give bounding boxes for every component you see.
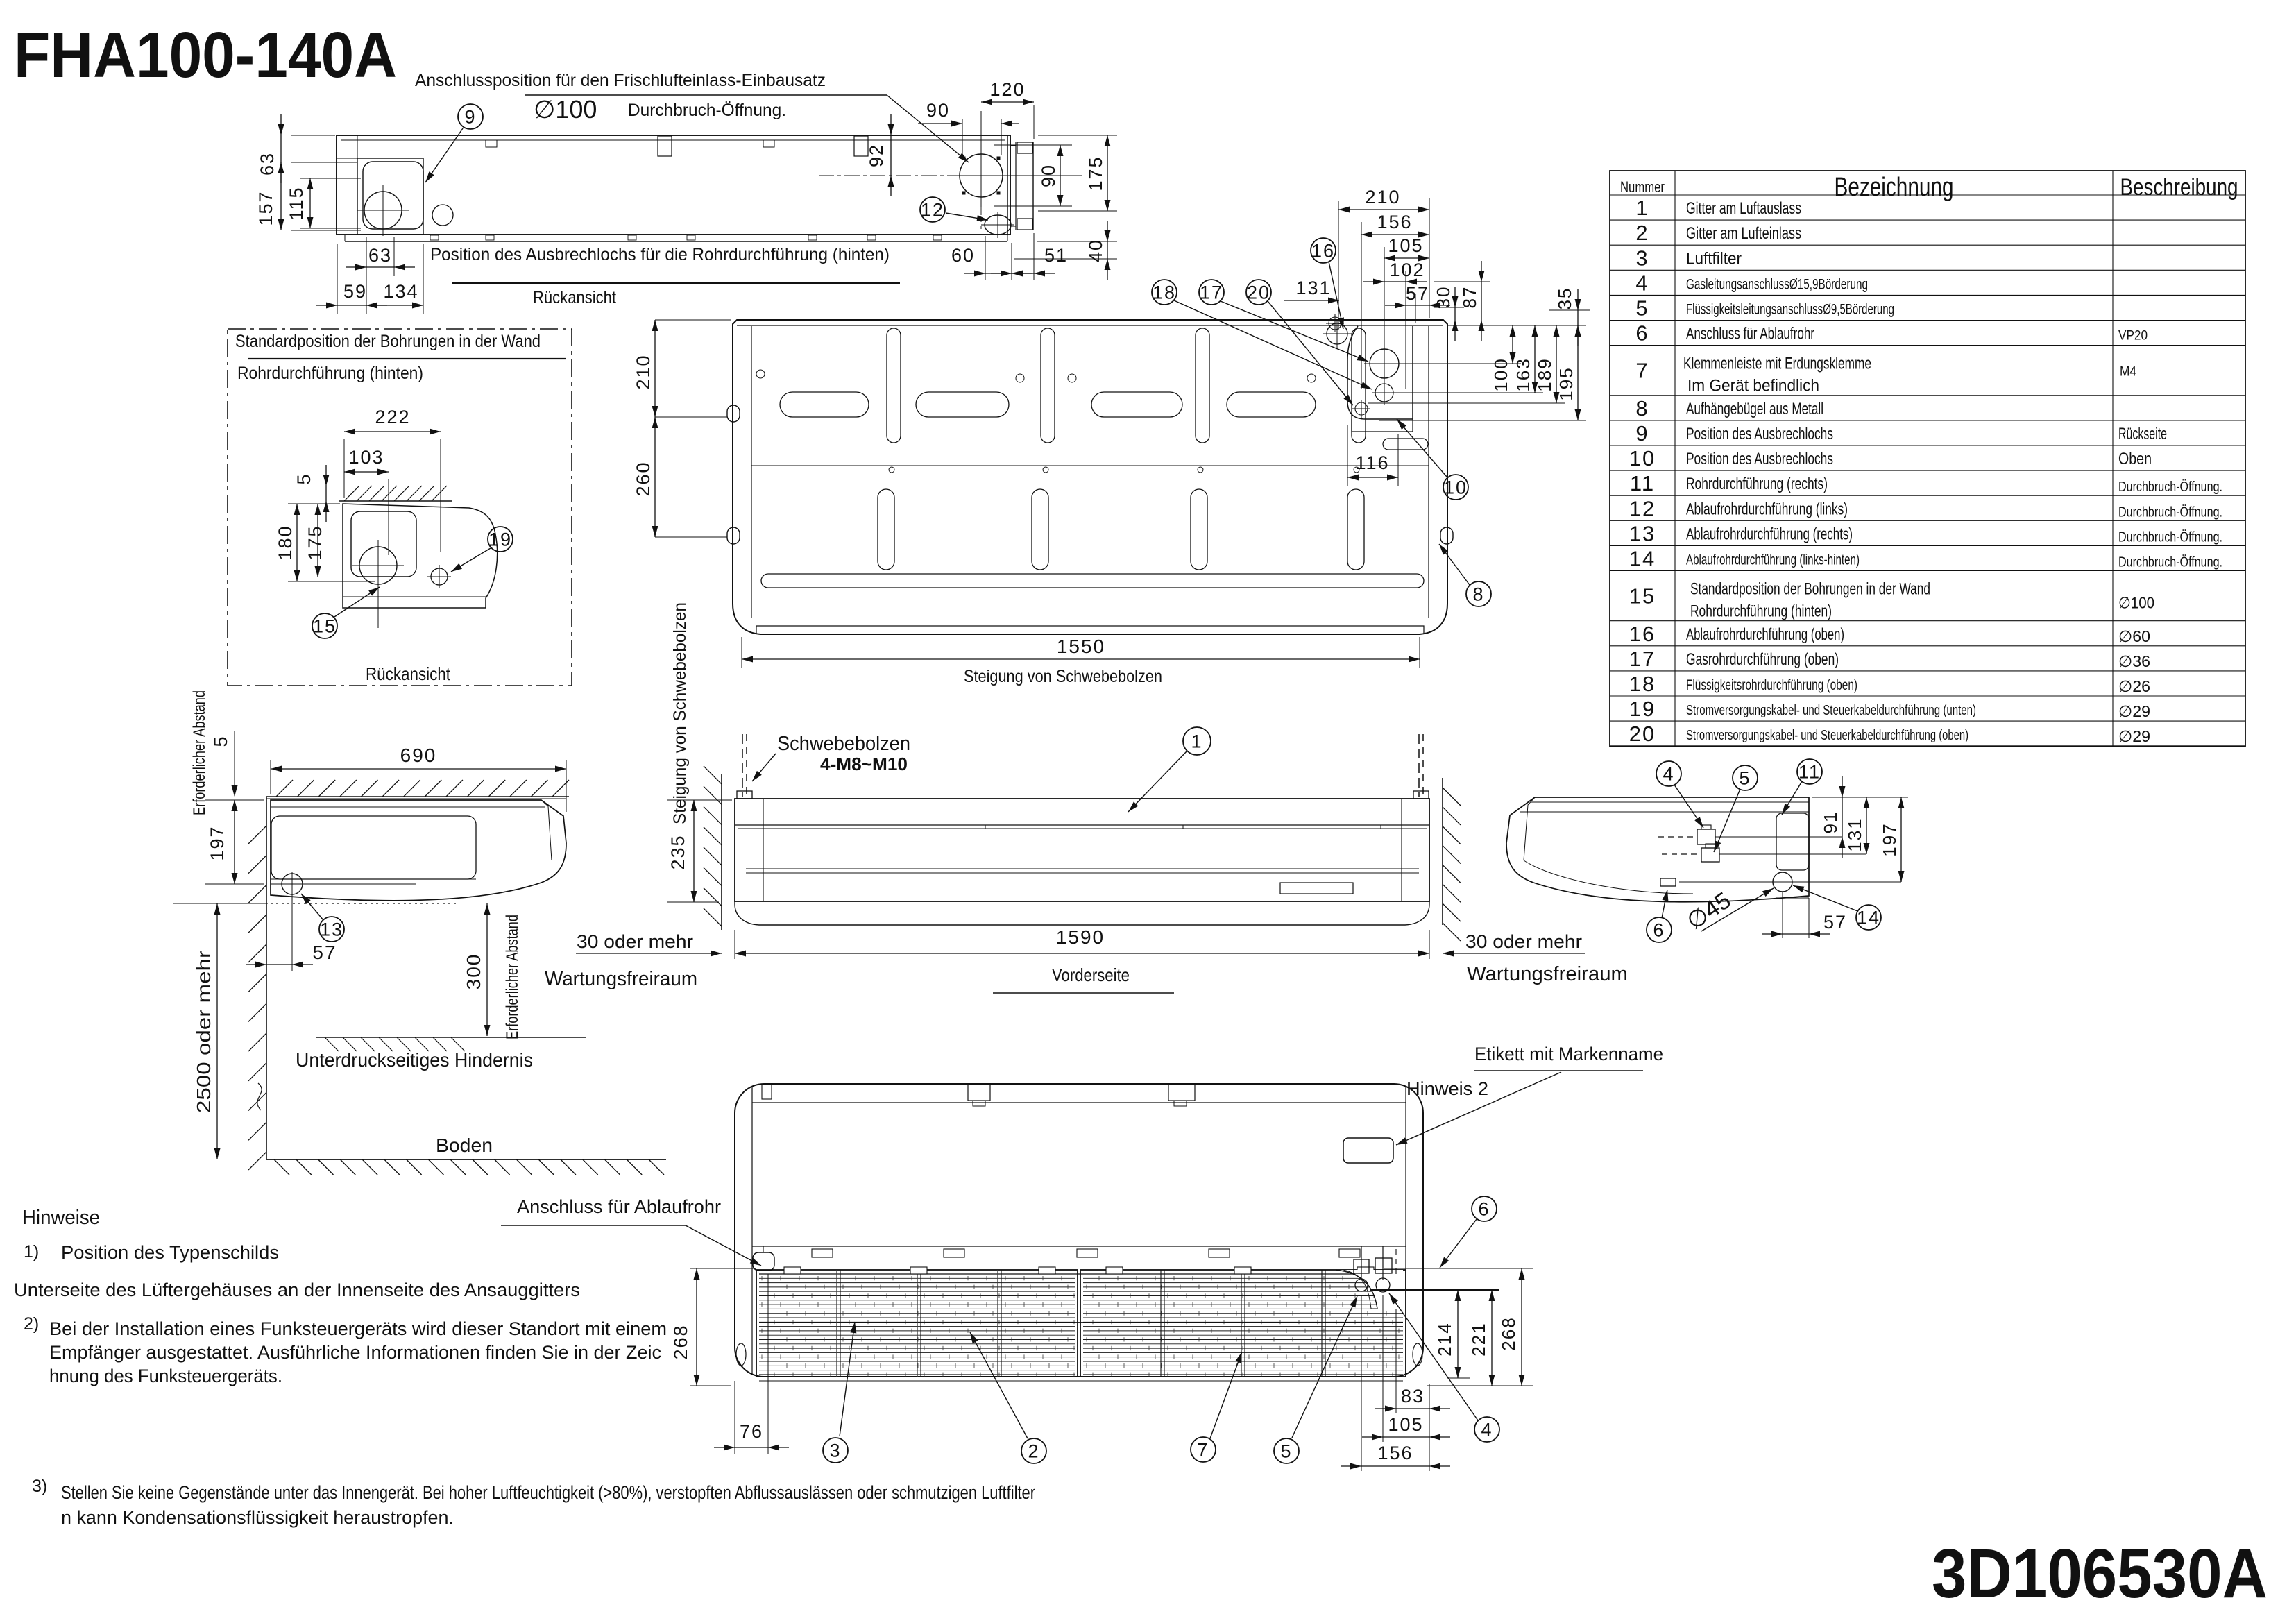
svg-text:268: 268 xyxy=(1498,1316,1519,1350)
svg-text:FlüssigkeitsleitungsanschlussØ: FlüssigkeitsleitungsanschlussØ9,5Börderu… xyxy=(1686,301,1894,317)
svg-text:3D106530A: 3D106530A xyxy=(1932,1535,2268,1613)
svg-text:16: 16 xyxy=(1629,622,1656,646)
svg-text:131: 131 xyxy=(1295,278,1331,298)
svg-text:Nummer: Nummer xyxy=(1620,178,1665,196)
svg-text:Durchbruch-Öffnung.: Durchbruch-Öffnung. xyxy=(628,101,786,120)
svg-text:2: 2 xyxy=(1028,1441,1039,1462)
svg-text:40: 40 xyxy=(1085,239,1106,262)
svg-text:∅29: ∅29 xyxy=(2118,702,2150,720)
svg-text:Rückansicht: Rückansicht xyxy=(366,663,451,684)
svg-text:16: 16 xyxy=(1311,241,1335,262)
svg-text:Rohrdurchführung (hinten): Rohrdurchführung (hinten) xyxy=(1690,602,1832,621)
svg-text:6: 6 xyxy=(1478,1199,1490,1220)
svg-text:10: 10 xyxy=(1444,477,1468,498)
svg-text:Stromversorgungskabel- und Ste: Stromversorgungskabel- und Steuerkabeldu… xyxy=(1686,703,1976,718)
svg-text:195: 195 xyxy=(1556,366,1576,400)
svg-text:3): 3) xyxy=(32,1477,47,1496)
svg-text:51: 51 xyxy=(1044,245,1068,266)
svg-text:VP20: VP20 xyxy=(2118,329,2148,343)
svg-text:Durchbruch-Öffnung.: Durchbruch-Öffnung. xyxy=(2118,554,2222,570)
svg-text:7: 7 xyxy=(1635,359,1649,383)
svg-text:Klemmenleiste mit Erdungsklemm: Klemmenleiste mit Erdungsklemme xyxy=(1683,355,1871,373)
svg-text:4: 4 xyxy=(1663,764,1674,785)
svg-text:17: 17 xyxy=(1200,282,1223,303)
svg-text:180: 180 xyxy=(275,525,296,560)
svg-text:Ablaufrohrdurchführung (rechts: Ablaufrohrdurchführung (rechts) xyxy=(1686,525,1853,543)
svg-text:8: 8 xyxy=(1635,396,1649,420)
svg-text:Position des Ausbrechlochs: Position des Ausbrechlochs xyxy=(1686,425,1833,443)
svg-text:175: 175 xyxy=(305,525,325,560)
svg-text:3: 3 xyxy=(1635,246,1649,270)
svg-text:Empfänger ausgestattet. Ausfüh: Empfänger ausgestattet. Ausführliche Inf… xyxy=(49,1342,661,1363)
svg-text:15: 15 xyxy=(1629,584,1656,609)
svg-text:Aufhängebügel aus Metall: Aufhängebügel aus Metall xyxy=(1686,400,1823,418)
svg-text:6: 6 xyxy=(1635,321,1649,346)
svg-text:Hinweis 2: Hinweis 2 xyxy=(1406,1078,1488,1099)
svg-text:Stellen Sie keine Gegenstände: Stellen Sie keine Gegenstände unter das … xyxy=(61,1482,1035,1503)
svg-text:Rückseite: Rückseite xyxy=(2118,425,2167,443)
svg-text:92: 92 xyxy=(866,144,887,167)
svg-text:5: 5 xyxy=(1280,1441,1292,1462)
svg-text:1550: 1550 xyxy=(1057,636,1105,657)
svg-text:Unterseite des Lüftergehäuses: Unterseite des Lüftergehäuses an der Inn… xyxy=(14,1280,580,1300)
svg-text:20: 20 xyxy=(1629,722,1656,746)
svg-text:Position des Typenschilds: Position des Typenschilds xyxy=(61,1242,279,1263)
svg-text:Ablaufrohrdurchführung (links-: Ablaufrohrdurchführung (links-hinten) xyxy=(1686,552,1860,568)
svg-text:∅100: ∅100 xyxy=(2118,594,2154,612)
svg-text:Gitter am Luftauslass: Gitter am Luftauslass xyxy=(1686,199,1801,218)
svg-text:4: 4 xyxy=(1635,271,1649,295)
svg-text:116: 116 xyxy=(1355,452,1389,473)
svg-text:Flüssigkeitsrohrdurchführung (: Flüssigkeitsrohrdurchführung (oben) xyxy=(1686,677,1857,693)
svg-text:103: 103 xyxy=(348,447,384,468)
svg-text:14: 14 xyxy=(1857,908,1880,928)
svg-text:30 oder mehr: 30 oder mehr xyxy=(1465,931,1582,952)
svg-text:1590: 1590 xyxy=(1056,926,1105,948)
svg-text:Vorderseite: Vorderseite xyxy=(1052,965,1130,985)
svg-text:3: 3 xyxy=(829,1441,841,1461)
svg-text:60: 60 xyxy=(951,245,975,266)
svg-text:14: 14 xyxy=(1629,546,1656,570)
svg-text:Erforderlicher Abstand: Erforderlicher Abstand xyxy=(190,690,209,815)
svg-text:163: 163 xyxy=(1513,357,1533,391)
svg-text:156: 156 xyxy=(1377,1443,1413,1463)
svg-text:20: 20 xyxy=(1247,282,1270,303)
svg-text:87: 87 xyxy=(1459,286,1480,309)
svg-text:∅60: ∅60 xyxy=(2118,627,2150,645)
svg-text:5: 5 xyxy=(210,735,231,747)
svg-text:Beschreibung: Beschreibung xyxy=(2120,174,2238,201)
svg-text:690: 690 xyxy=(400,745,437,766)
svg-text:Anschluss für Ablaufrohr: Anschluss für Ablaufrohr xyxy=(1686,325,1814,343)
svg-text:235: 235 xyxy=(667,834,688,869)
svg-text:63: 63 xyxy=(257,152,278,176)
svg-text:13: 13 xyxy=(320,919,343,940)
svg-text:Unterdruckseitiges Hindernis: Unterdruckseitiges Hindernis xyxy=(296,1049,533,1071)
svg-text:120: 120 xyxy=(989,79,1025,100)
svg-text:M4: M4 xyxy=(2120,365,2136,380)
svg-text:76: 76 xyxy=(740,1421,763,1442)
svg-text:210: 210 xyxy=(633,354,654,389)
svg-text:Gitter am Lufteinlass: Gitter am Lufteinlass xyxy=(1686,224,1801,243)
svg-text:221: 221 xyxy=(1468,1322,1489,1356)
svg-text:1: 1 xyxy=(1191,731,1202,752)
svg-text:4-M8~M10: 4-M8~M10 xyxy=(820,754,908,774)
svg-text:157: 157 xyxy=(255,190,276,226)
svg-text:Bei der Installation eines Fun: Bei der Installation eines Funksteuerger… xyxy=(49,1318,667,1339)
svg-text:63: 63 xyxy=(368,245,392,266)
svg-text:57: 57 xyxy=(1823,912,1847,933)
svg-text:2): 2) xyxy=(24,1314,39,1334)
svg-text:1): 1) xyxy=(24,1242,39,1261)
svg-text:214: 214 xyxy=(1434,1322,1455,1356)
svg-text:134: 134 xyxy=(383,281,418,302)
svg-text:2: 2 xyxy=(1635,221,1649,245)
svg-text:105: 105 xyxy=(1388,1414,1423,1435)
svg-text:105: 105 xyxy=(1388,235,1423,256)
svg-text:8: 8 xyxy=(1472,584,1484,605)
svg-text:90: 90 xyxy=(926,100,950,121)
svg-text:Erforderlicher Abstand: Erforderlicher Abstand xyxy=(503,915,522,1039)
svg-text:30: 30 xyxy=(1433,286,1454,309)
svg-text:115: 115 xyxy=(286,186,307,220)
svg-text:Rohrdurchführung (rechts): Rohrdurchführung (rechts) xyxy=(1686,475,1828,493)
svg-text:Stromversorgungskabel- und Ste: Stromversorgungskabel- und Steuerkabeldu… xyxy=(1686,728,1968,743)
svg-text:59: 59 xyxy=(343,281,367,302)
svg-text:9: 9 xyxy=(464,107,476,128)
svg-text:19: 19 xyxy=(1629,697,1656,721)
svg-text:17: 17 xyxy=(1629,647,1656,671)
svg-text:4: 4 xyxy=(1481,1420,1493,1441)
svg-text:57: 57 xyxy=(1406,283,1429,304)
svg-text:10: 10 xyxy=(1629,446,1656,470)
svg-text:Wartungsfreiraum: Wartungsfreiraum xyxy=(1467,963,1628,985)
svg-text:Anschluss für Ablaufrohr: Anschluss für Ablaufrohr xyxy=(517,1196,721,1217)
svg-text:Boden: Boden xyxy=(436,1135,493,1156)
svg-text:FHA100-140A: FHA100-140A xyxy=(14,19,397,91)
svg-text:131: 131 xyxy=(1844,817,1865,851)
svg-text:Ablaufrohrdurchführung (oben): Ablaufrohrdurchführung (oben) xyxy=(1686,625,1844,644)
svg-text:175: 175 xyxy=(1085,155,1106,191)
svg-text:156: 156 xyxy=(1377,212,1412,232)
svg-text:15: 15 xyxy=(313,616,337,637)
svg-text:90: 90 xyxy=(1038,164,1059,187)
svg-text:18: 18 xyxy=(1153,282,1176,303)
svg-text:57: 57 xyxy=(312,942,337,963)
svg-text:102: 102 xyxy=(1389,260,1425,280)
svg-text:13: 13 xyxy=(1629,521,1656,545)
svg-text:18: 18 xyxy=(1629,672,1656,696)
svg-text:100: 100 xyxy=(1490,357,1511,391)
svg-text:Wartungsfreiraum: Wartungsfreiraum xyxy=(545,968,697,990)
svg-text:5: 5 xyxy=(294,473,314,484)
svg-text:∅36: ∅36 xyxy=(2118,652,2150,670)
svg-text:11: 11 xyxy=(1798,762,1821,783)
svg-text:Steigung von Schwebebolzen: Steigung von Schwebebolzen xyxy=(964,667,1162,686)
svg-text:∅26: ∅26 xyxy=(2118,677,2150,695)
svg-text:Luftfilter: Luftfilter xyxy=(1686,249,1742,268)
svg-text:Standardposition der Bohrungen: Standardposition der Bohrungen in der Wa… xyxy=(235,332,541,351)
svg-text:5: 5 xyxy=(1635,296,1649,320)
svg-text:268: 268 xyxy=(670,1324,691,1359)
svg-text:91: 91 xyxy=(1820,811,1841,834)
svg-text:Hinweise: Hinweise xyxy=(22,1207,100,1229)
svg-text:Ablaufrohrdurchführung (links): Ablaufrohrdurchführung (links) xyxy=(1686,500,1848,518)
svg-text:2500 oder mehr: 2500 oder mehr xyxy=(193,951,214,1113)
svg-text:Oben: Oben xyxy=(2118,450,2152,468)
svg-text:12: 12 xyxy=(921,200,944,221)
svg-text:6: 6 xyxy=(1653,920,1665,941)
svg-text:Etikett mit Markenname: Etikett mit Markenname xyxy=(1474,1044,1663,1064)
svg-text:n kann Kondensationsflüssigkei: n kann Kondensationsflüssigkeit heraustr… xyxy=(61,1507,454,1528)
svg-text:11: 11 xyxy=(1630,471,1655,495)
svg-text:Gasrohrdurchführung (oben): Gasrohrdurchführung (oben) xyxy=(1686,650,1839,669)
svg-text:hnung des Funksteuergeräts.: hnung des Funksteuergeräts. xyxy=(49,1366,282,1386)
svg-text:Standardposition der Bohrungen: Standardposition der Bohrungen in der Wa… xyxy=(1690,580,1930,599)
svg-text:189: 189 xyxy=(1534,357,1555,391)
svg-text:GasleitungsanschlussØ15,9Börde: GasleitungsanschlussØ15,9Börderung xyxy=(1686,276,1868,292)
svg-text:∅100: ∅100 xyxy=(534,95,597,124)
svg-text:Durchbruch-Öffnung.: Durchbruch-Öffnung. xyxy=(2118,504,2222,520)
svg-text:Schwebebolzen: Schwebebolzen xyxy=(777,733,910,755)
svg-text:Durchbruch-Öffnung.: Durchbruch-Öffnung. xyxy=(2118,529,2222,545)
svg-text:30 oder mehr: 30 oder mehr xyxy=(577,931,693,952)
svg-text:Position des Ausbrechlochs für: Position des Ausbrechlochs für die Rohrd… xyxy=(430,245,890,264)
svg-text:∅29: ∅29 xyxy=(2118,727,2150,745)
svg-text:Im Gerät befindlich: Im Gerät befindlich xyxy=(1687,377,1819,396)
svg-text:19: 19 xyxy=(488,529,512,550)
svg-text:Durchbruch-Öffnung.: Durchbruch-Öffnung. xyxy=(2118,479,2222,495)
svg-text:Rohrdurchführung (hinten): Rohrdurchführung (hinten) xyxy=(237,364,423,383)
svg-text:Position des Ausbrechlochs: Position des Ausbrechlochs xyxy=(1686,450,1833,468)
svg-text:35: 35 xyxy=(1554,287,1575,310)
svg-text:222: 222 xyxy=(375,407,410,427)
svg-text:83: 83 xyxy=(1401,1386,1425,1407)
svg-text:210: 210 xyxy=(1365,187,1400,207)
svg-text:9: 9 xyxy=(1635,421,1649,445)
svg-text:Anschlussposition für den Fris: Anschlussposition für den Frischlufteinl… xyxy=(415,71,826,90)
svg-text:197: 197 xyxy=(207,825,228,860)
svg-text:300: 300 xyxy=(463,953,484,990)
svg-text:5: 5 xyxy=(1739,768,1751,789)
svg-text:7: 7 xyxy=(1197,1440,1209,1461)
svg-text:Rückansicht: Rückansicht xyxy=(533,288,616,307)
svg-text:197: 197 xyxy=(1879,822,1900,856)
svg-text:1: 1 xyxy=(1635,196,1649,220)
svg-text:Steigung von Schwebebolzen: Steigung von Schwebebolzen xyxy=(670,602,690,824)
svg-text:12: 12 xyxy=(1629,496,1656,520)
svg-text:Bezeichnung: Bezeichnung xyxy=(1835,173,1954,202)
svg-text:260: 260 xyxy=(633,461,654,496)
